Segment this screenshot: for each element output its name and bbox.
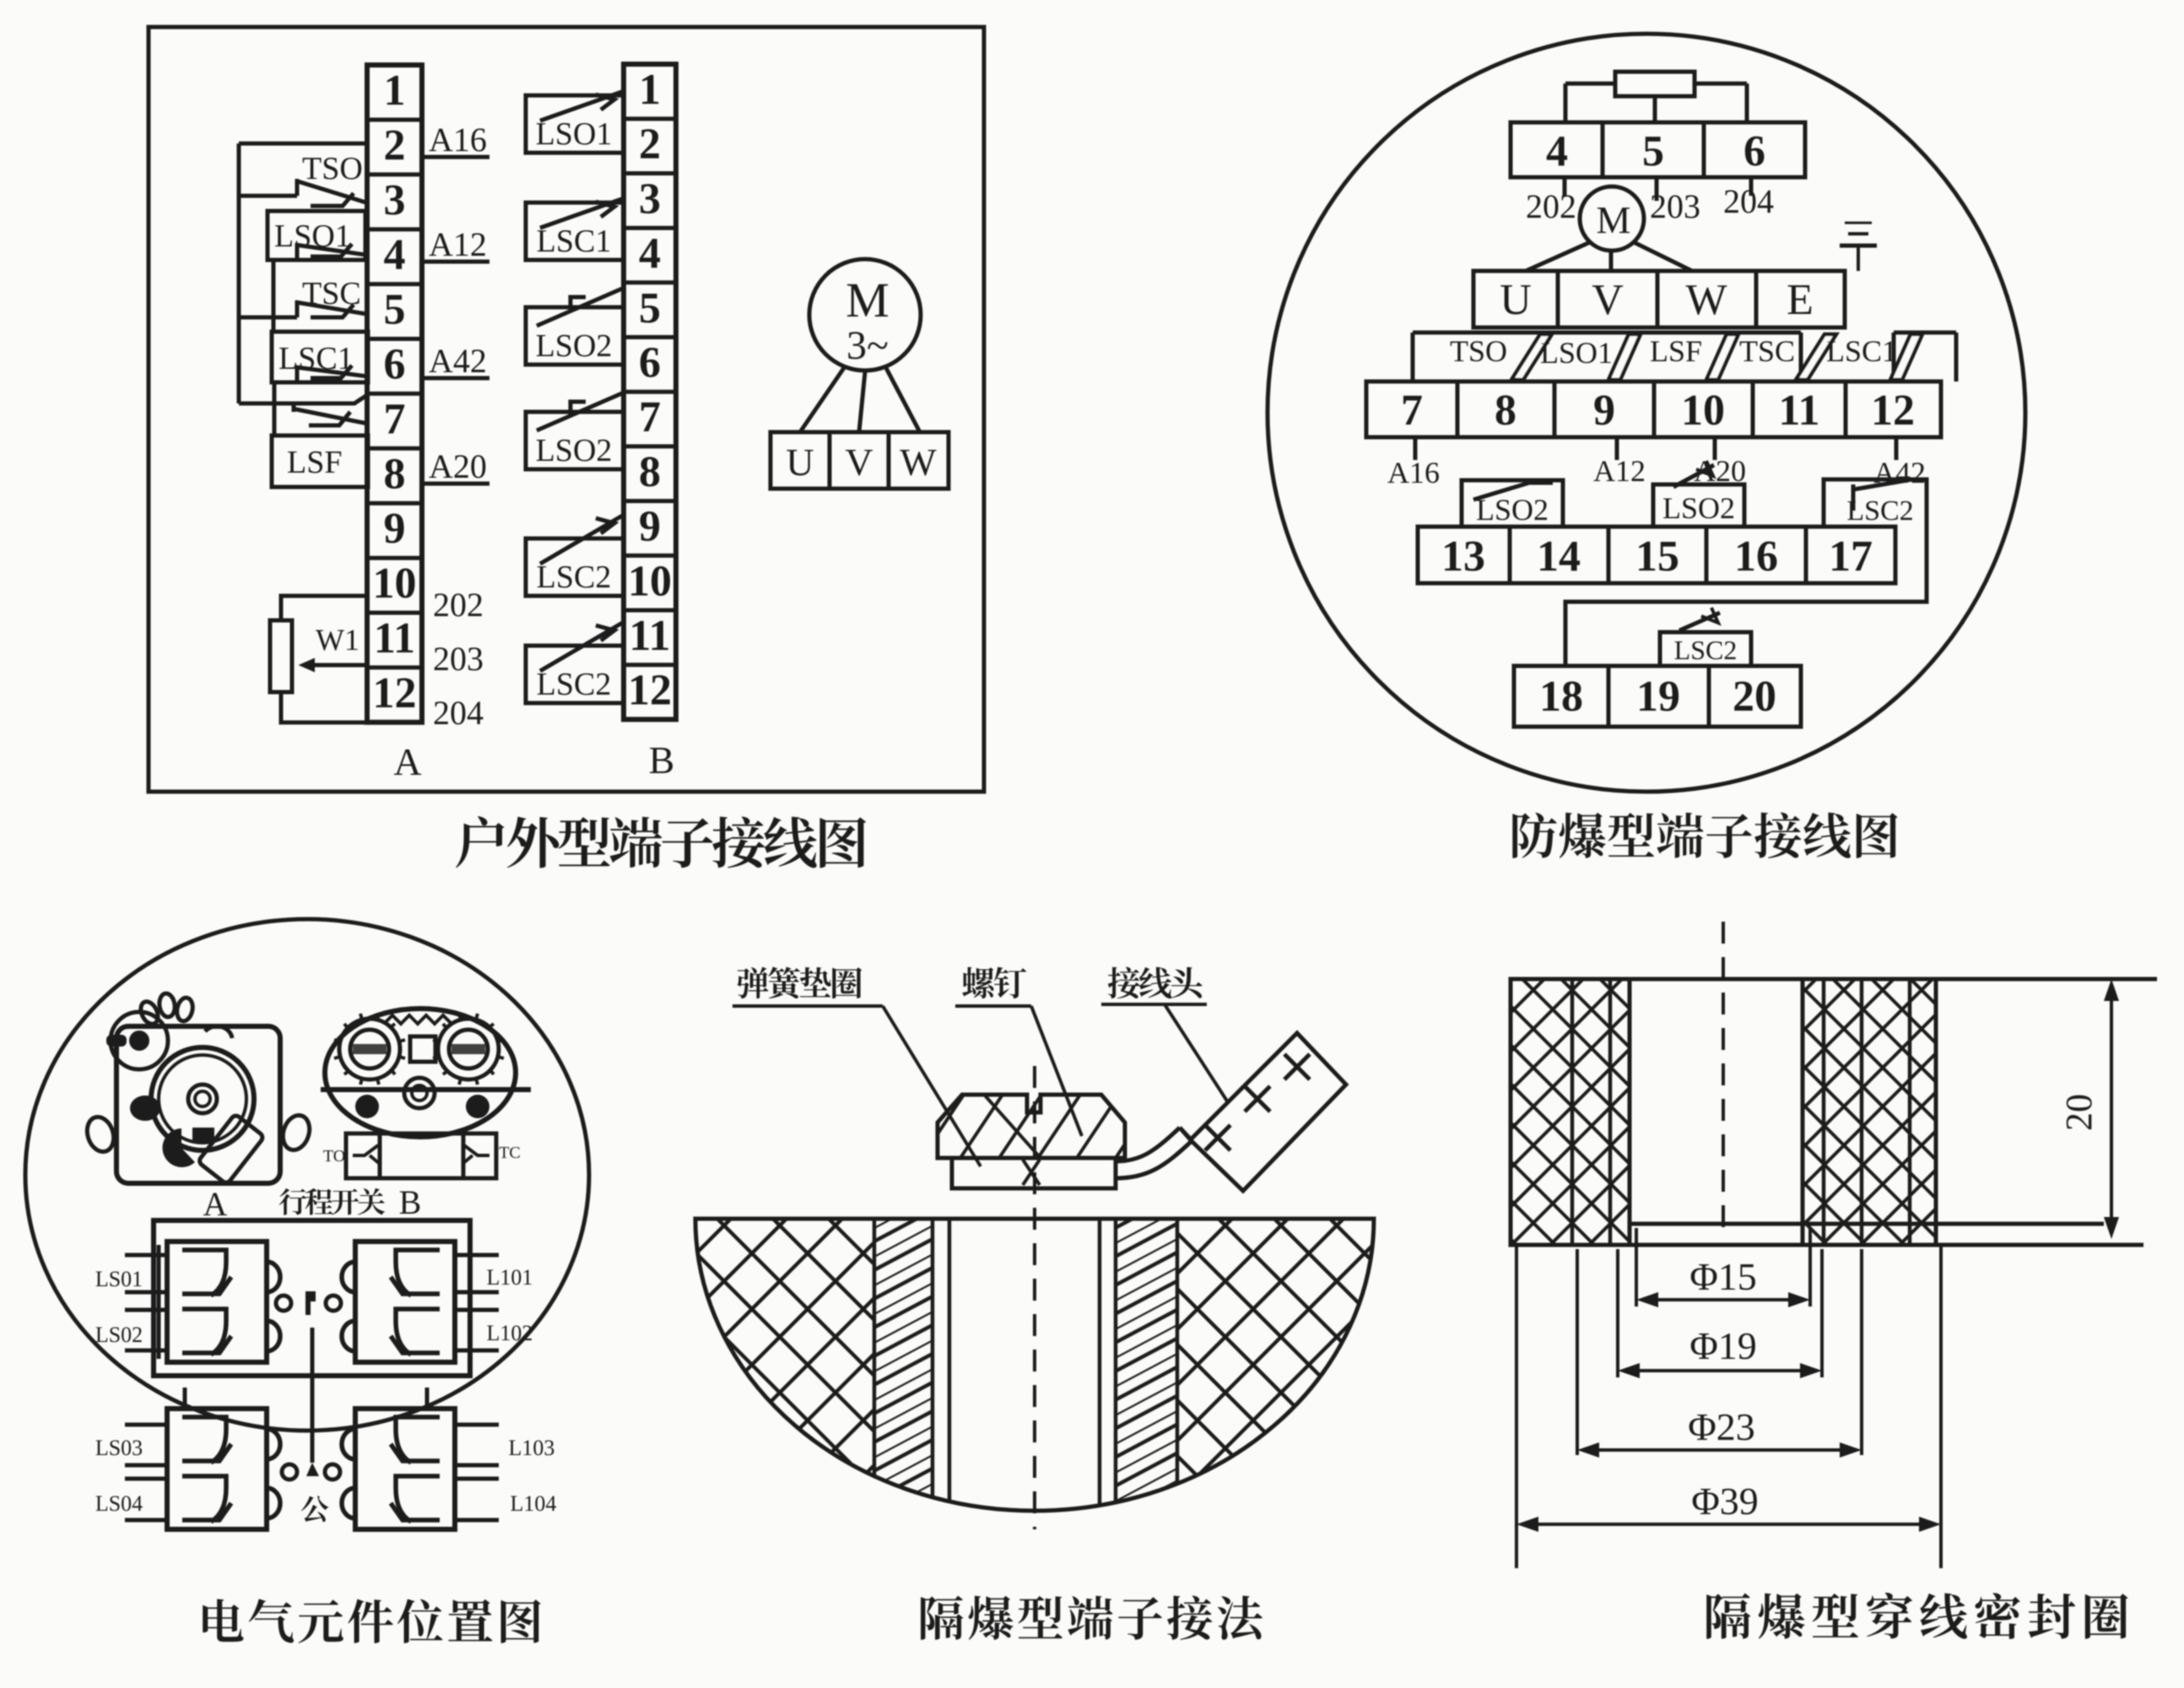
- svg-text:TO: TO: [323, 1147, 345, 1166]
- svg-text:8: 8: [384, 450, 406, 498]
- svg-text:M: M: [846, 273, 889, 327]
- svg-text:18: 18: [1539, 673, 1583, 721]
- svg-text:B: B: [399, 1183, 422, 1221]
- svg-text:LSO1: LSO1: [536, 116, 613, 152]
- svg-text:LSO2: LSO2: [536, 433, 613, 468]
- svg-text:W1: W1: [316, 623, 359, 657]
- svg-text:9: 9: [1593, 387, 1615, 435]
- svg-text:2: 2: [384, 122, 406, 170]
- svg-text:11: 11: [629, 612, 670, 660]
- svg-text:9: 9: [384, 505, 406, 553]
- svg-text:3: 3: [384, 176, 406, 225]
- svg-text:M: M: [1597, 198, 1631, 241]
- svg-text:6: 6: [384, 341, 406, 389]
- svg-text:5: 5: [1642, 127, 1664, 176]
- svg-text:10: 10: [1681, 387, 1725, 435]
- svg-text:204: 204: [433, 694, 484, 732]
- svg-text:202: 202: [1526, 187, 1576, 225]
- svg-text:5: 5: [639, 284, 661, 333]
- svg-text:20: 20: [1733, 673, 1776, 721]
- svg-text:12: 12: [373, 669, 417, 717]
- svg-text:15: 15: [1635, 533, 1679, 581]
- svg-text:L104: L104: [511, 1491, 557, 1516]
- svg-text:TSO: TSO: [1450, 334, 1507, 368]
- svg-text:10: 10: [628, 557, 672, 605]
- svg-text:V: V: [845, 441, 873, 484]
- svg-text:LSO2: LSO2: [1662, 491, 1735, 525]
- svg-text:Φ23: Φ23: [1688, 1405, 1755, 1448]
- svg-text:203: 203: [433, 640, 484, 678]
- svg-text:7: 7: [639, 393, 661, 441]
- svg-text:A16: A16: [1387, 456, 1440, 490]
- svg-text:8: 8: [639, 448, 661, 496]
- svg-text:LSC2: LSC2: [537, 667, 612, 702]
- svg-text:17: 17: [1829, 533, 1873, 581]
- svg-text:12: 12: [1871, 387, 1915, 435]
- svg-text:A12: A12: [1593, 454, 1646, 488]
- svg-text:Φ15: Φ15: [1689, 1255, 1757, 1298]
- svg-text:LSF: LSF: [287, 445, 342, 480]
- svg-text:U: U: [1500, 276, 1532, 324]
- svg-text:5: 5: [384, 286, 406, 334]
- svg-text:W: W: [1685, 276, 1727, 324]
- svg-text:E: E: [1787, 276, 1814, 324]
- svg-text:LSC1: LSC1: [537, 224, 612, 259]
- svg-text:V: V: [1592, 276, 1624, 324]
- svg-text:4: 4: [639, 230, 661, 278]
- svg-text:LSC2: LSC2: [1674, 635, 1738, 665]
- svg-text:A42: A42: [429, 342, 487, 380]
- svg-text:4: 4: [1546, 127, 1568, 176]
- svg-text:LSC2: LSC2: [1846, 495, 1913, 527]
- svg-text:LSF: LSF: [1650, 334, 1702, 368]
- svg-text:6: 6: [1743, 127, 1765, 176]
- svg-text:LSC1: LSC1: [1826, 334, 1897, 368]
- svg-text:20: 20: [2058, 1094, 2100, 1131]
- svg-text:TSO: TSO: [302, 151, 363, 187]
- svg-text:11: 11: [374, 614, 415, 663]
- svg-text:16: 16: [1734, 533, 1778, 581]
- svg-text:14: 14: [1537, 533, 1581, 581]
- svg-text:TC: TC: [499, 1144, 521, 1162]
- svg-text:LS01: LS01: [95, 1267, 143, 1291]
- svg-text:10: 10: [373, 560, 417, 608]
- svg-text:L102: L102: [487, 1321, 533, 1345]
- svg-text:LSC2: LSC2: [537, 560, 612, 595]
- svg-text:A16: A16: [429, 121, 487, 159]
- svg-text:L101: L101: [487, 1265, 533, 1290]
- svg-text:LS02: LS02: [95, 1323, 143, 1347]
- svg-text:L103: L103: [509, 1436, 555, 1460]
- svg-text:A: A: [203, 1185, 228, 1223]
- svg-text:W: W: [900, 441, 937, 484]
- svg-text:LSO2: LSO2: [536, 328, 613, 364]
- svg-text:202: 202: [433, 586, 484, 624]
- svg-text:203: 203: [1650, 187, 1700, 225]
- svg-text:TSC: TSC: [302, 276, 361, 311]
- svg-text:Φ19: Φ19: [1689, 1324, 1757, 1367]
- svg-text:12: 12: [628, 667, 672, 715]
- svg-text:4: 4: [384, 231, 406, 279]
- svg-text:1: 1: [384, 67, 406, 115]
- svg-text:8: 8: [1495, 387, 1516, 435]
- svg-text:1: 1: [639, 66, 661, 114]
- svg-text:3~: 3~: [846, 323, 889, 368]
- svg-text:TSC: TSC: [1739, 334, 1795, 368]
- svg-text:7: 7: [384, 395, 406, 443]
- svg-text:LSO1: LSO1: [1540, 336, 1613, 370]
- svg-text:A: A: [393, 740, 421, 783]
- svg-text:9: 9: [639, 503, 661, 551]
- svg-text:2: 2: [639, 121, 661, 169]
- svg-text:A12: A12: [429, 225, 487, 263]
- svg-text:B: B: [649, 738, 675, 782]
- svg-text:U: U: [786, 441, 814, 484]
- svg-text:A20: A20: [429, 447, 487, 485]
- svg-text:13: 13: [1441, 533, 1485, 581]
- svg-text:Φ39: Φ39: [1691, 1480, 1759, 1523]
- svg-text:LS03: LS03: [95, 1436, 143, 1460]
- svg-text:204: 204: [1723, 182, 1774, 220]
- svg-text:7: 7: [1401, 387, 1423, 435]
- svg-text:LS04: LS04: [95, 1491, 143, 1516]
- svg-text:3: 3: [639, 175, 661, 223]
- svg-text:19: 19: [1636, 673, 1680, 721]
- svg-text:LSO2: LSO2: [1476, 493, 1549, 527]
- svg-text:11: 11: [1778, 387, 1819, 435]
- svg-text:6: 6: [639, 339, 661, 387]
